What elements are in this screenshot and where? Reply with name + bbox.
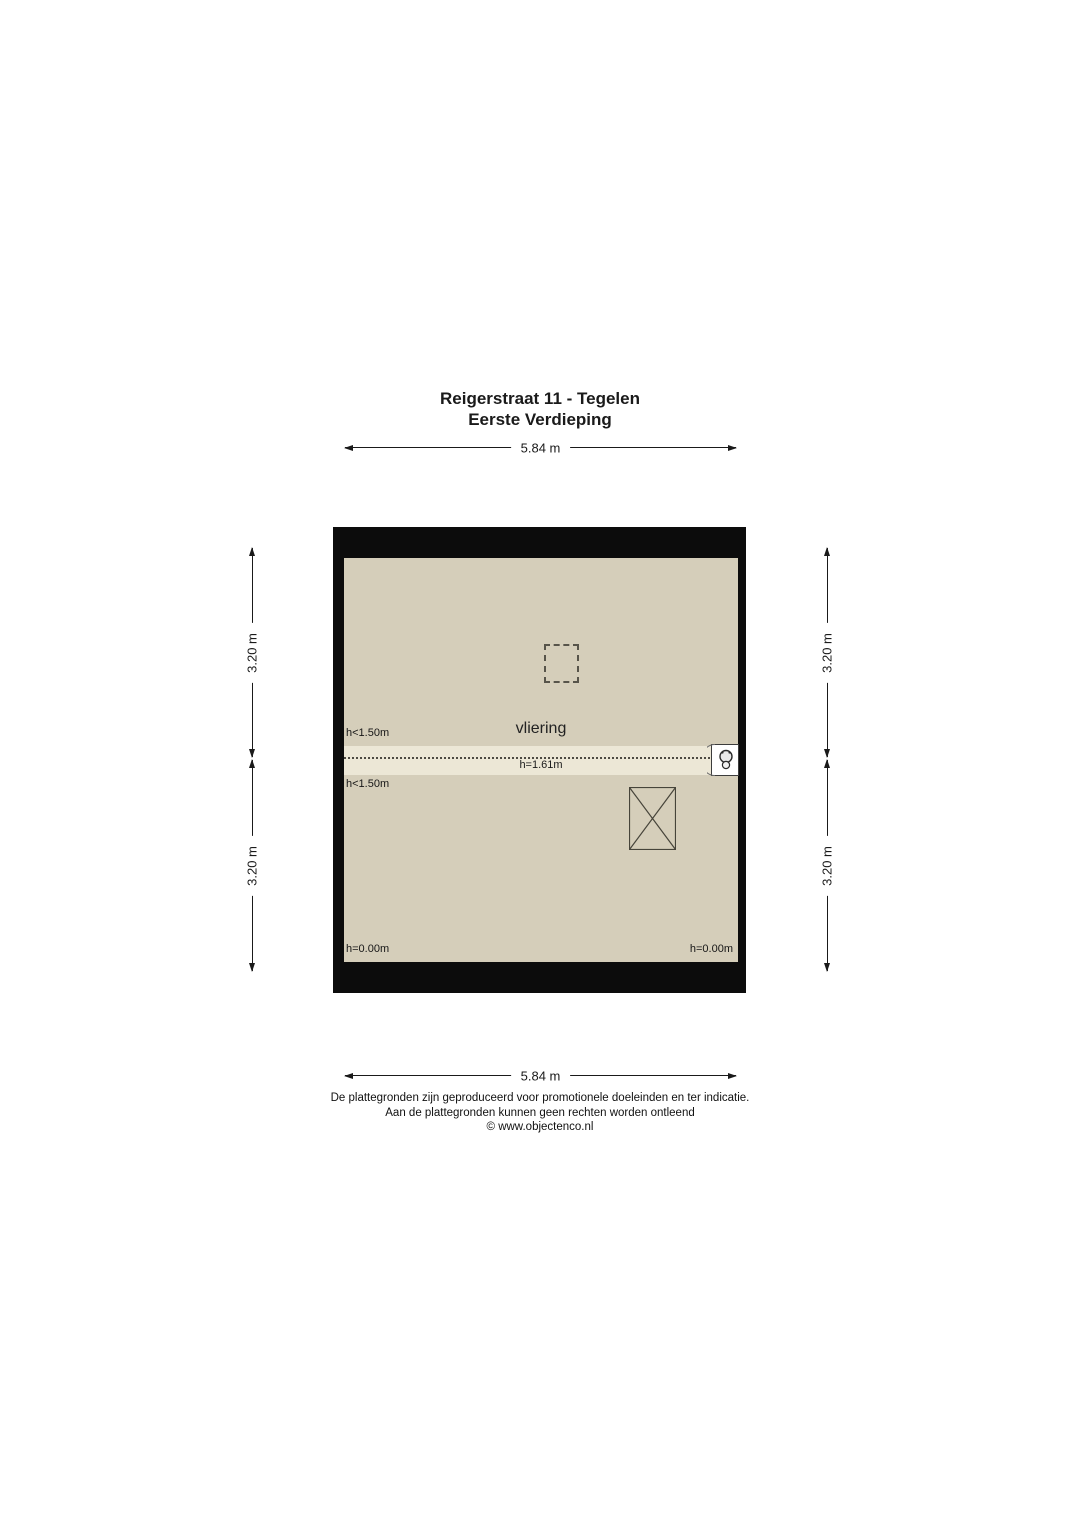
arrow-right-icon xyxy=(728,445,737,451)
floorplan-walls: h<1.50m vliering h=1.61m h<1.50m xyxy=(333,527,746,993)
height-label-bottom-right: h=0.00m xyxy=(690,943,733,955)
arrow-down-icon xyxy=(824,963,830,972)
dimension-top-label: 5.84 m xyxy=(511,441,571,456)
dimension-bottom: 5.84 m xyxy=(344,1069,737,1082)
copyright-line: © www.objectenco.nl xyxy=(0,1120,1080,1135)
arrow-up-icon xyxy=(249,547,255,556)
dimension-right-lower-label: 3.20 m xyxy=(820,836,835,896)
arrow-left-icon xyxy=(344,445,353,451)
dimension-left-lower-label: 3.20 m xyxy=(245,836,260,896)
arrow-down-icon xyxy=(824,749,830,758)
dimension-right-upper-label: 3.20 m xyxy=(820,623,835,683)
dimension-right-upper: 3.20 m xyxy=(821,547,834,758)
room-name-label: vliering xyxy=(344,720,738,738)
dimension-right-lower: 3.20 m xyxy=(821,759,834,972)
page-title: Reigerstraat 11 - Tegelen Eerste Verdiep… xyxy=(0,388,1080,430)
height-label-bottom-left: h=0.00m xyxy=(346,943,389,955)
arrow-right-icon xyxy=(728,1073,737,1079)
arrow-up-icon xyxy=(824,547,830,556)
address-title: Reigerstraat 11 - Tegelen xyxy=(0,388,1080,409)
arrow-left-icon xyxy=(344,1073,353,1079)
floorplan-page: Reigerstraat 11 - Tegelen Eerste Verdiep… xyxy=(0,0,1080,1527)
disclaimer-line2: Aan de plattegronden kunnen geen rechten… xyxy=(0,1106,1080,1121)
height-label-below-band: h<1.50m xyxy=(346,778,389,790)
dimension-left-lower: 3.20 m xyxy=(246,759,259,972)
dimension-left-upper-label: 3.20 m xyxy=(245,623,260,683)
dimension-top: 5.84 m xyxy=(344,441,737,454)
disclaimer-line1: De plattegronden zijn geproduceerd voor … xyxy=(0,1091,1080,1106)
arrow-up-icon xyxy=(249,759,255,768)
dimension-bottom-label: 5.84 m xyxy=(511,1069,571,1084)
attic-room: h<1.50m vliering h=1.61m h<1.50m xyxy=(344,558,738,962)
dimension-left-upper: 3.20 m xyxy=(246,547,259,758)
ridge-headroom-band: h=1.61m xyxy=(344,746,738,775)
height-label-ridge: h=1.61m xyxy=(519,759,562,771)
roof-hatch-dashed-icon xyxy=(544,644,579,683)
arrow-down-icon xyxy=(249,963,255,972)
stair-opening-icon xyxy=(629,787,676,850)
ventilation-unit-icon xyxy=(707,744,739,776)
disclaimer: De plattegronden zijn geproduceerd voor … xyxy=(0,1091,1080,1135)
floor-subtitle: Eerste Verdieping xyxy=(0,409,1080,430)
arrow-down-icon xyxy=(249,749,255,758)
arrow-up-icon xyxy=(824,759,830,768)
